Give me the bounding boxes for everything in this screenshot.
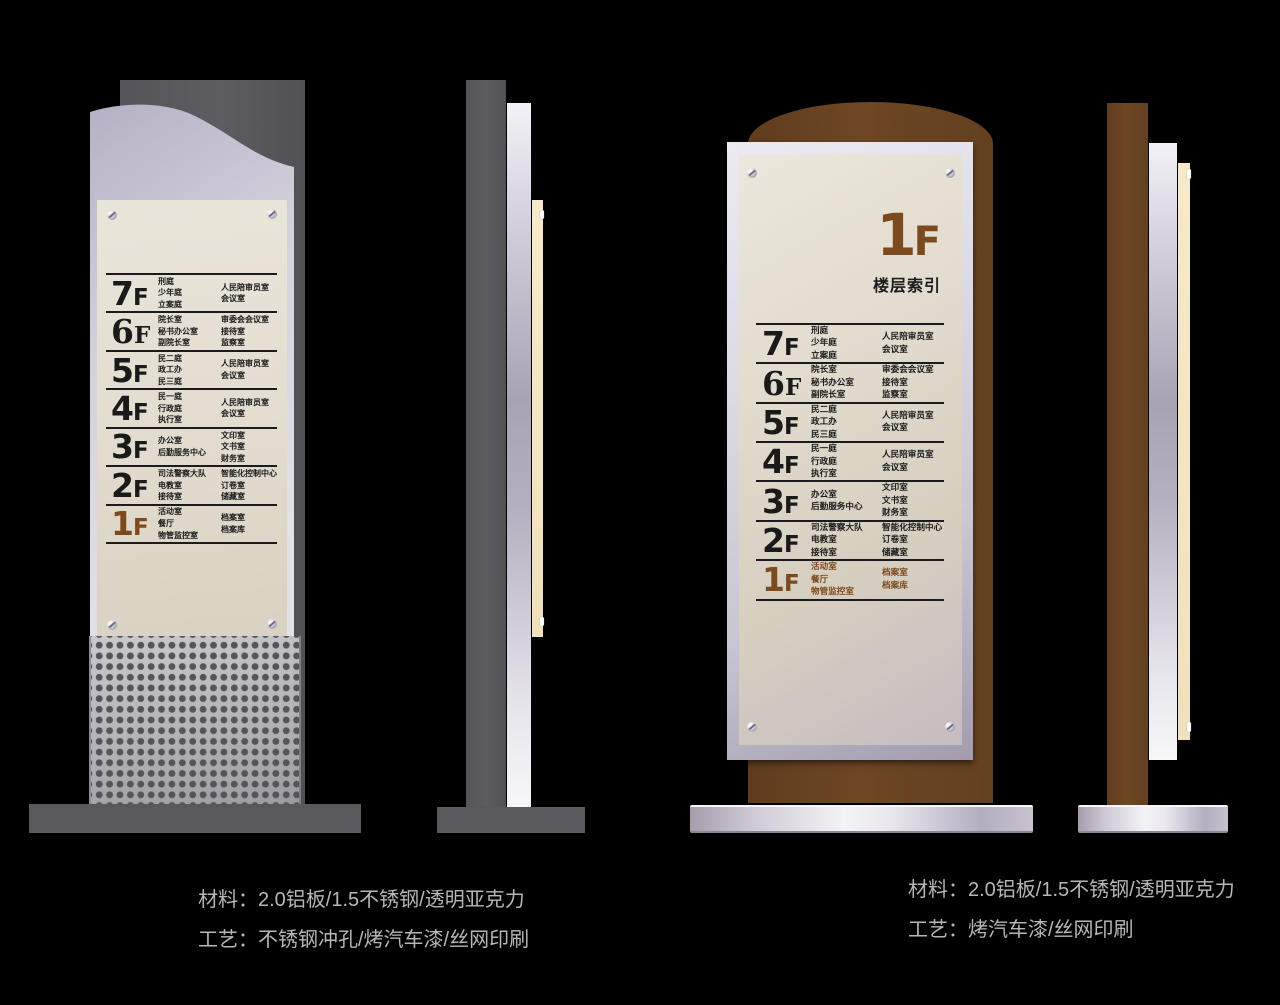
screw	[540, 210, 544, 219]
left-materials-caption: 材料：2.0铝板/1.5不锈钢/透明亚克力 工艺：不锈钢冲孔/烤汽车漆/丝网印刷	[198, 880, 529, 960]
right-sign-subtitle: 楼层索引	[781, 272, 941, 296]
floor-row-2f: 2F司法警察大队电教室接待室智能化控制中心订卷室储藏室	[756, 520, 944, 559]
screw	[267, 209, 277, 219]
floor-rooms: 人民陪审员室会议室	[882, 449, 944, 474]
floor-number: 6F	[106, 315, 158, 348]
left-totem-side-column	[466, 80, 506, 807]
left-floor-directory: 7F刑庭少年庭立案庭人民陪审员室会议室6F院长室秘书办公室副院长室审委会会议室接…	[106, 273, 277, 544]
floor-rooms: 司法警察大队电教室接待室	[811, 522, 882, 559]
floor-row-7f: 7F刑庭少年庭立案庭人民陪审员室会议室	[756, 323, 944, 362]
floor-row-3f: 3F办公室后勤服务中心文印室文书室财务室	[106, 427, 277, 465]
screw	[1187, 722, 1191, 732]
floor-rooms: 审委会会议室接待室监察室	[221, 314, 277, 349]
screw	[747, 722, 757, 732]
floor-number: 5F	[106, 354, 158, 387]
floor-rooms: 审委会会议室接待室监察室	[882, 364, 944, 401]
floor-row-4f: 4F民一庭行政庭执行室人民陪审员室会议室	[756, 441, 944, 480]
floor-number: 6F	[756, 367, 811, 400]
screw	[945, 168, 955, 178]
floor-row-5f: 5F民二庭政工办民三庭人民陪审员室会议室	[756, 402, 944, 441]
floor-number: 3F	[756, 485, 811, 518]
screw	[1187, 169, 1191, 179]
floor-rooms: 人民陪审员室会议室	[882, 410, 944, 435]
right-sign-floor-title: 1F	[781, 206, 941, 264]
floor-number: 7F	[756, 327, 811, 360]
right-totem-side-acrylic	[1178, 163, 1190, 740]
floor-rooms: 智能化控制中心订卷室储藏室	[882, 522, 944, 559]
floor-row-6f: 6F院长室秘书办公室副院长室审委会会议室接待室监察室	[756, 362, 944, 401]
floor-rooms: 民一庭行政庭执行室	[158, 391, 221, 426]
floor-rooms: 办公室后勤服务中心	[158, 435, 221, 458]
floor-number: 4F	[756, 445, 811, 478]
screw	[540, 617, 544, 626]
floor-rooms: 档案室档案库	[882, 567, 944, 592]
floor-row-5f: 5F民二庭政工办民三庭人民陪审员室会议室	[106, 350, 277, 388]
floor-rooms: 人民陪审员室会议室	[882, 331, 944, 356]
floor-row-6f: 6F院长室秘书办公室副院长室审委会会议室接待室监察室	[106, 311, 277, 349]
floor-rooms: 活动室餐厅物管监控室	[158, 506, 221, 541]
floor-number: 2F	[106, 469, 158, 502]
floor-row-1f: 1F活动室餐厅物管监控室档案室档案库	[756, 559, 944, 600]
left-totem-side-base	[437, 807, 585, 833]
floor-row-2f: 2F司法警察大队电教室接待室智能化控制中心订卷室储藏室	[106, 465, 277, 503]
floor-rooms: 人民陪审员室会议室	[221, 282, 277, 305]
floor-number: 3F	[106, 430, 158, 463]
left-totem-base	[29, 804, 361, 833]
screw	[107, 210, 117, 220]
right-material-line: 材料：2.0铝板/1.5不锈钢/透明亚克力	[908, 870, 1235, 910]
floor-number: 2F	[756, 524, 811, 557]
left-process-line: 工艺：不锈钢冲孔/烤汽车漆/丝网印刷	[198, 920, 529, 960]
floor-rooms: 刑庭少年庭立案庭	[158, 276, 221, 311]
floor-row-3f: 3F办公室后勤服务中心文印室文书室财务室	[756, 480, 944, 519]
floor-rooms: 办公室后勤服务中心	[811, 489, 882, 514]
floor-rooms: 文印室文书室财务室	[882, 482, 944, 519]
right-process-line: 工艺：烤汽车漆/丝网印刷	[908, 910, 1235, 950]
floor-number: 1F	[756, 563, 811, 596]
right-materials-caption: 材料：2.0铝板/1.5不锈钢/透明亚克力 工艺：烤汽车漆/丝网印刷	[908, 870, 1235, 950]
floor-number: 5F	[756, 406, 811, 439]
floor-rooms: 院长室秘书办公室副院长室	[811, 364, 882, 401]
screw	[945, 722, 955, 732]
floor-number: 1F	[106, 507, 158, 540]
floor-rooms: 司法警察大队电教室接待室	[158, 468, 221, 503]
left-totem-side-acrylic	[532, 200, 543, 637]
left-totem-perforated-panel	[89, 636, 301, 804]
screw	[267, 619, 277, 629]
left-material-line: 材料：2.0铝板/1.5不锈钢/透明亚克力	[198, 880, 529, 920]
floor-row-4f: 4F民一庭行政庭执行室人民陪审员室会议室	[106, 388, 277, 426]
floor-number: 7F	[106, 277, 158, 310]
right-totem-side-column	[1107, 103, 1148, 805]
floor-rooms: 院长室秘书办公室副院长室	[158, 314, 221, 349]
floor-rooms: 人民陪审员室会议室	[221, 397, 277, 420]
right-totem-side-panel	[1149, 143, 1177, 760]
floor-rooms: 刑庭少年庭立案庭	[811, 325, 882, 362]
screw	[747, 168, 757, 178]
floor-number: 4F	[106, 392, 158, 425]
floor-row-1f: 1F活动室餐厅物管监控室档案室档案库	[106, 504, 277, 544]
screw	[107, 620, 117, 630]
floor-rooms: 民二庭政工办民三庭	[158, 353, 221, 388]
floor-rooms: 档案室档案库	[221, 512, 277, 535]
floor-rooms: 民二庭政工办民三庭	[811, 404, 882, 441]
right-totem-base	[690, 805, 1033, 833]
floor-rooms: 人民陪审员室会议室	[221, 358, 277, 381]
right-floor-directory: 7F刑庭少年庭立案庭人民陪审员室会议室6F院长室秘书办公室副院长室审委会会议室接…	[756, 323, 944, 594]
floor-row-7f: 7F刑庭少年庭立案庭人民陪审员室会议室	[106, 273, 277, 311]
left-totem-side-panel	[507, 103, 531, 807]
right-totem-side-base	[1078, 805, 1228, 833]
floor-rooms: 智能化控制中心订卷室储藏室	[221, 468, 277, 503]
floor-rooms: 文印室文书室财务室	[221, 430, 277, 465]
floor-rooms: 活动室餐厅物管监控室	[811, 561, 882, 598]
floor-rooms: 民一庭行政庭执行室	[811, 443, 882, 480]
